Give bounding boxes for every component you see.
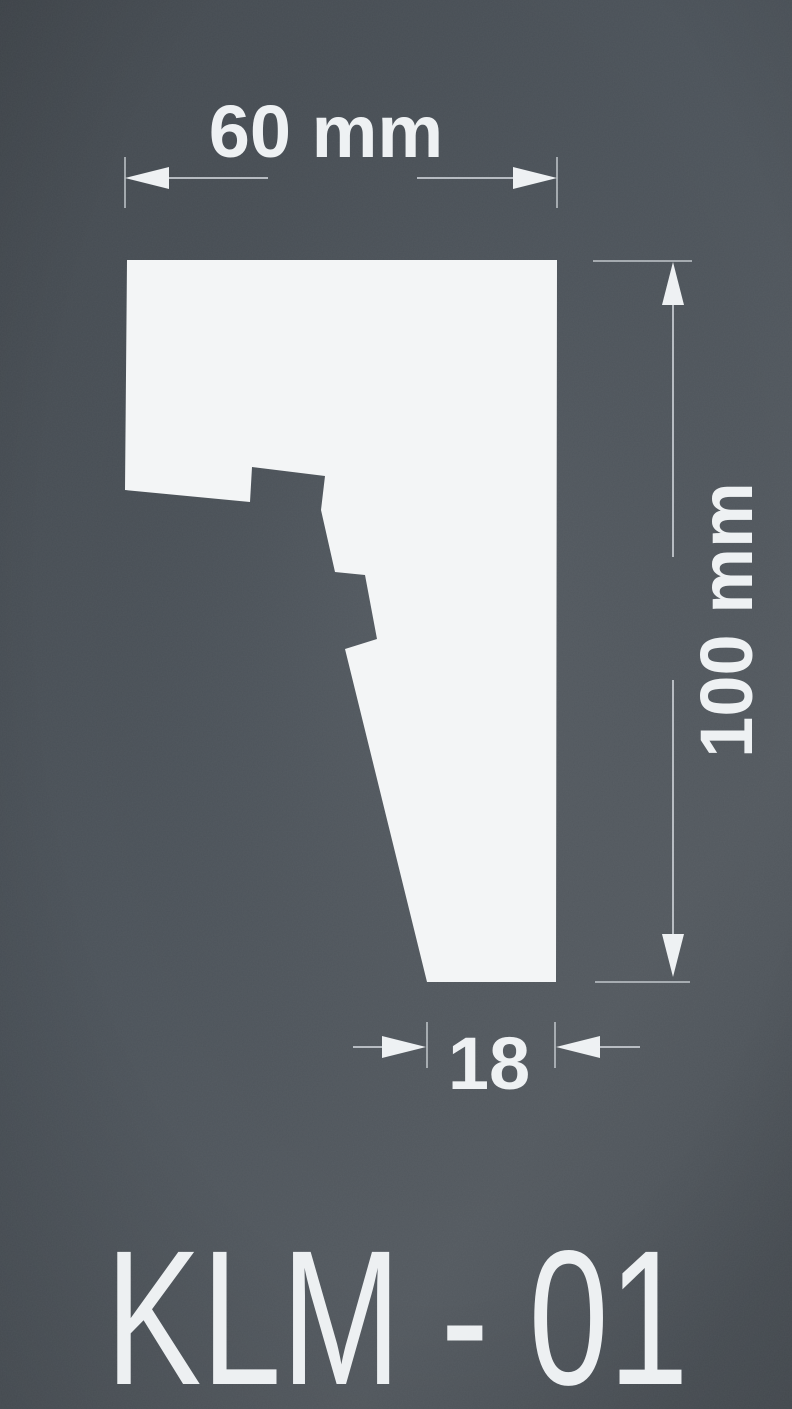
width-dimension-label: 60 mm [209, 90, 443, 173]
profile-drawing: 60 mm 100 mm 18 KLM - 01 [0, 0, 792, 1409]
foot-width-dimension-label: 18 [448, 1022, 530, 1105]
height-dimension-label: 100 mm [685, 482, 768, 758]
product-title: KLM - 01 [106, 1210, 689, 1409]
drawing-canvas: 60 mm 100 mm 18 KLM - 01 [0, 0, 792, 1409]
